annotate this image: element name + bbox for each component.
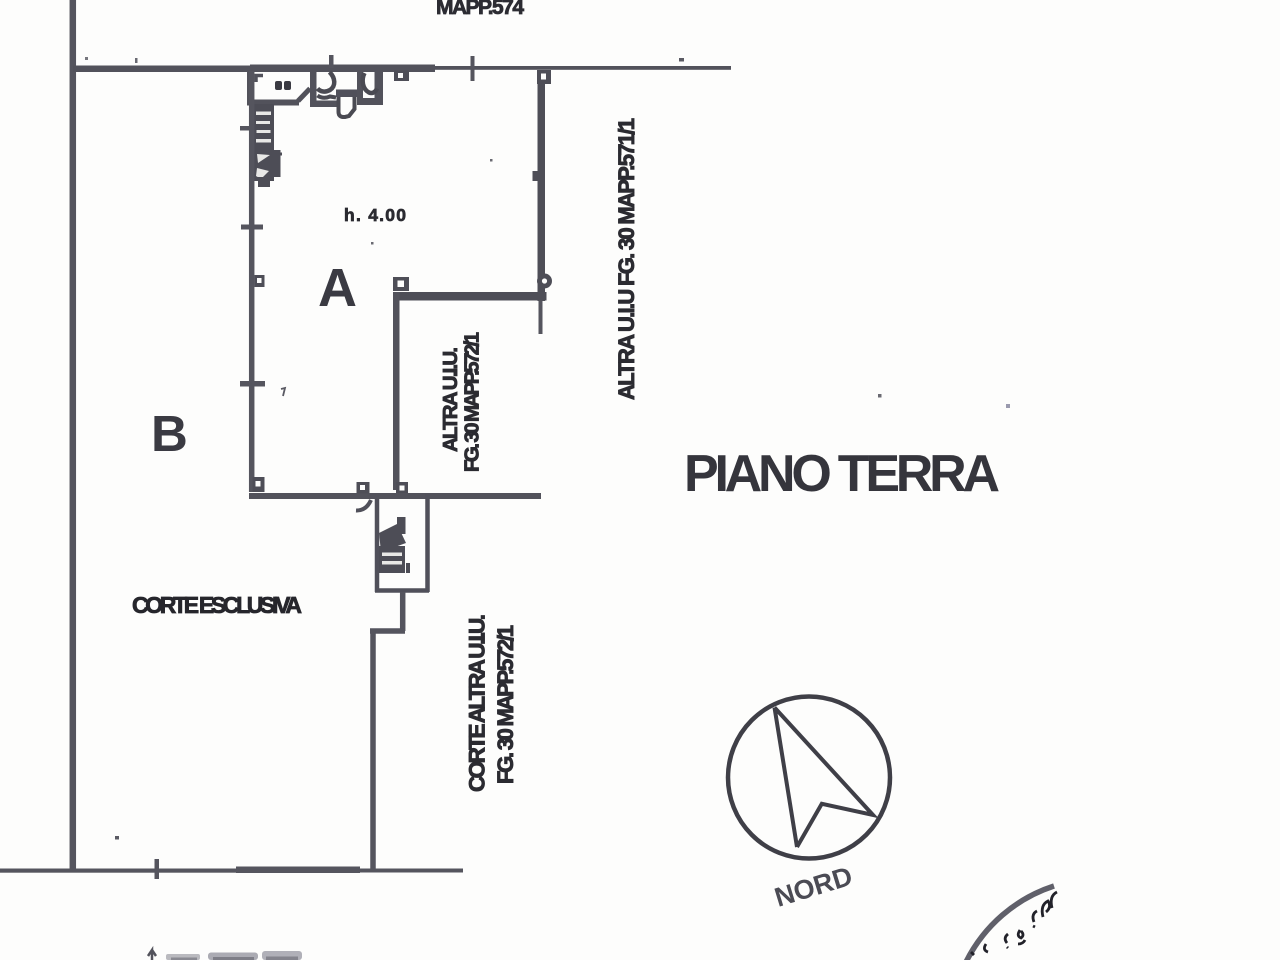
svg-text:FG. 30 MAPP.572/1: FG. 30 MAPP.572/1 bbox=[493, 625, 518, 784]
svg-text:h. 4.00: h. 4.00 bbox=[344, 205, 406, 225]
svg-text:PIANO TERRA: PIANO TERRA bbox=[684, 445, 1000, 503]
svg-text:B: B bbox=[151, 405, 188, 462]
svg-text:CORTE ALTRA U.I.U.: CORTE ALTRA U.I.U. bbox=[465, 614, 490, 792]
svg-text:ALTRA U.I.U FG. 30 MAPP.571/1: ALTRA U.I.U FG. 30 MAPP.571/1 bbox=[614, 118, 639, 400]
svg-text:CORTE ESCLUSIVA: CORTE ESCLUSIVA bbox=[132, 592, 302, 618]
svg-text:FG. 30 MAPP.572/1: FG. 30 MAPP.572/1 bbox=[461, 332, 484, 472]
svg-text:A: A bbox=[318, 258, 357, 318]
svg-text:MAPP.574: MAPP.574 bbox=[436, 0, 524, 19]
svg-text:ALTRA U.I.U.: ALTRA U.I.U. bbox=[439, 347, 462, 452]
